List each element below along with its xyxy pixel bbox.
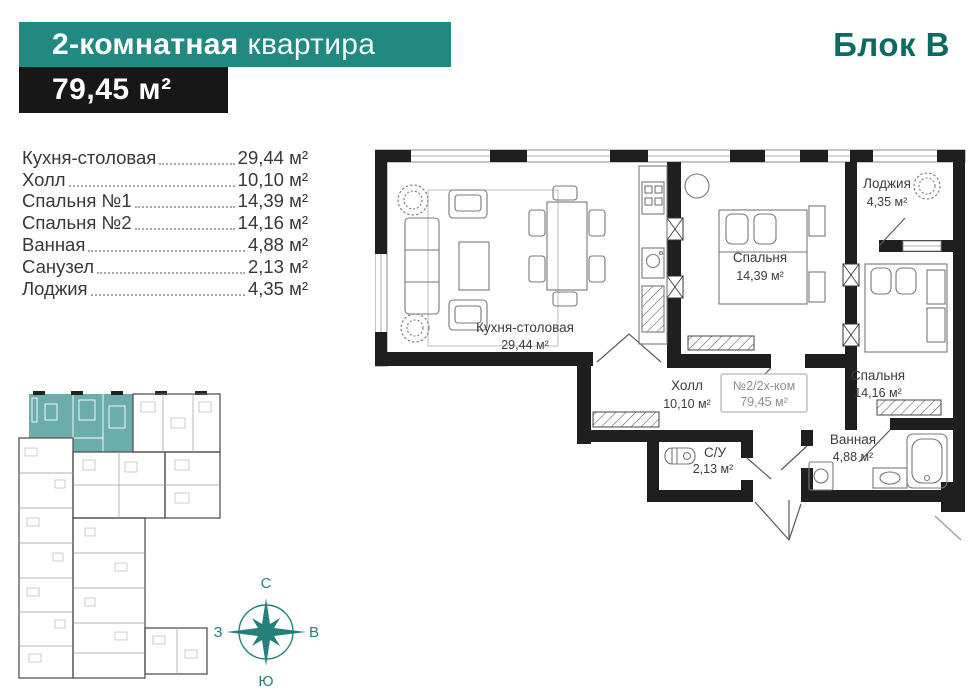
bedroom1-label: Спальня bbox=[733, 250, 787, 265]
room-list-item: Санузел 2,13 м² bbox=[22, 256, 308, 278]
chair bbox=[529, 210, 545, 236]
highlighted-unit bbox=[29, 394, 133, 452]
plant bbox=[914, 173, 940, 199]
dishwasher bbox=[642, 286, 664, 332]
dotted-leader bbox=[135, 228, 235, 230]
room-name: Спальня №1 bbox=[22, 190, 132, 212]
dotted-leader bbox=[91, 294, 245, 296]
floor-overview-plan bbox=[15, 388, 230, 684]
kitchen-area: 29,44 м² bbox=[501, 338, 549, 352]
title-bar: 2-комнатная квартира bbox=[19, 22, 451, 67]
compass-rose: С Ю З В bbox=[210, 572, 322, 690]
loggia-plant bbox=[914, 173, 940, 199]
unit-badge-line2: 79,45 м² bbox=[740, 395, 788, 409]
compass-svg: С Ю З В bbox=[210, 572, 322, 690]
bathroom-area: 4,88 м² bbox=[833, 450, 874, 464]
floor-overview-svg bbox=[15, 388, 230, 684]
dotted-leader bbox=[159, 163, 234, 165]
room-name: Санузел bbox=[22, 256, 94, 278]
wc-area: 2,13 м² bbox=[693, 462, 734, 476]
kitchen-counter bbox=[639, 166, 667, 344]
loggia-label: Лоджия bbox=[863, 176, 911, 191]
room-list: Кухня-столовая 29,44 м² Холл 10,10 м² Сп… bbox=[22, 147, 308, 300]
room-list-item: Холл 10,10 м² bbox=[22, 169, 308, 191]
bedroom1-area: 14,39 м² bbox=[736, 269, 784, 283]
wc-label: С/У bbox=[704, 445, 727, 460]
compass-star bbox=[226, 598, 306, 666]
dotted-leader bbox=[135, 206, 235, 208]
outside-mark bbox=[935, 516, 961, 540]
compass-west: З bbox=[213, 624, 222, 641]
bedroom2-furniture bbox=[865, 264, 947, 352]
hall-label: Холл bbox=[671, 378, 703, 393]
bathroom-label: Ванная bbox=[830, 432, 876, 447]
compass-north: С bbox=[261, 575, 272, 592]
floorplan-page: 2-комнатная квартира 79,45 м² Блок В Кух… bbox=[0, 0, 974, 690]
compass-south: Ю bbox=[258, 673, 273, 690]
loggia-window bbox=[903, 241, 941, 251]
dotted-leader bbox=[88, 250, 245, 252]
room-name: Спальня №2 bbox=[22, 212, 132, 234]
room-area: 29,44 м² bbox=[238, 147, 308, 169]
nightstand bbox=[809, 206, 825, 236]
chair bbox=[553, 186, 577, 200]
total-area-value: 79,45 м² bbox=[52, 73, 172, 107]
room-area: 10,10 м² bbox=[238, 169, 308, 191]
bathtub bbox=[907, 434, 947, 488]
plant bbox=[401, 314, 429, 342]
kitchen-label: Кухня-столовая bbox=[476, 320, 574, 335]
room-area: 14,16 м² bbox=[238, 212, 308, 234]
total-area-bar: 79,45 м² bbox=[19, 67, 228, 113]
bedroom1-furniture bbox=[685, 174, 825, 304]
room-area: 2,13 м² bbox=[248, 256, 308, 278]
wc-door bbox=[747, 458, 771, 479]
title-rooms-count: 2-комнатная bbox=[52, 28, 239, 62]
room-list-item: Лоджия 4,35 м² bbox=[22, 278, 308, 300]
bedroom2-label: Спальня bbox=[851, 368, 905, 383]
dotted-leader bbox=[69, 185, 235, 187]
room-list-item: Кухня-столовая 29,44 м² bbox=[22, 147, 308, 169]
nightstand bbox=[809, 272, 825, 302]
dotted-leader bbox=[97, 272, 245, 274]
room-list-item: Спальня №1 14,39 м² bbox=[22, 191, 308, 213]
bathroom-sink bbox=[873, 468, 907, 488]
block-label: Блок В bbox=[650, 26, 950, 64]
apartment-floorplan: Кухня-столовая 29,44 м² Холл 10,10 м² Сп… bbox=[375, 148, 967, 562]
title-apartment-word: квартира bbox=[248, 28, 376, 62]
pillow bbox=[896, 268, 916, 294]
dining-table bbox=[547, 202, 587, 290]
chair-round bbox=[685, 174, 709, 198]
entry-wall-left bbox=[755, 502, 789, 540]
entry-wall-right bbox=[789, 504, 801, 540]
unit-badge-line1: №2/2х-ком bbox=[733, 379, 795, 393]
sofa bbox=[405, 218, 439, 314]
pillow bbox=[871, 268, 891, 294]
room-area: 4,35 м² bbox=[248, 278, 308, 300]
room-area: 14,39 м² bbox=[238, 190, 308, 212]
room-list-item: Спальня №2 14,16 м² bbox=[22, 212, 308, 234]
chair bbox=[553, 292, 577, 306]
room-name: Лоджия bbox=[22, 278, 88, 300]
unit-badge: №2/2х-ком 79,45 м² bbox=[721, 374, 807, 412]
wc-furniture bbox=[665, 448, 695, 464]
hall-area: 10,10 м² bbox=[663, 397, 711, 411]
room-name: Кухня-столовая bbox=[22, 147, 156, 169]
blanket bbox=[927, 270, 945, 304]
room-name: Ванная bbox=[22, 234, 85, 256]
pillow bbox=[754, 214, 776, 244]
chair bbox=[589, 256, 605, 282]
bathroom-door bbox=[781, 446, 807, 470]
kitchen-door bbox=[597, 334, 661, 362]
room-name: Холл bbox=[22, 169, 66, 191]
room-area: 4,88 м² bbox=[248, 234, 308, 256]
pillow bbox=[726, 214, 748, 244]
loggia-area: 4,35 м² bbox=[867, 195, 908, 209]
compass-east: В bbox=[309, 624, 319, 641]
sink bbox=[642, 248, 664, 278]
chair bbox=[589, 210, 605, 236]
plant bbox=[398, 185, 428, 215]
room-list-item: Ванная 4,88 м² bbox=[22, 234, 308, 256]
blanket bbox=[927, 308, 945, 342]
floorplan-svg: Кухня-столовая 29,44 м² Холл 10,10 м² Сп… bbox=[375, 148, 967, 562]
coffee-table bbox=[459, 242, 489, 290]
chair bbox=[529, 256, 545, 282]
bedroom2-area: 14,16 м² bbox=[854, 386, 902, 400]
